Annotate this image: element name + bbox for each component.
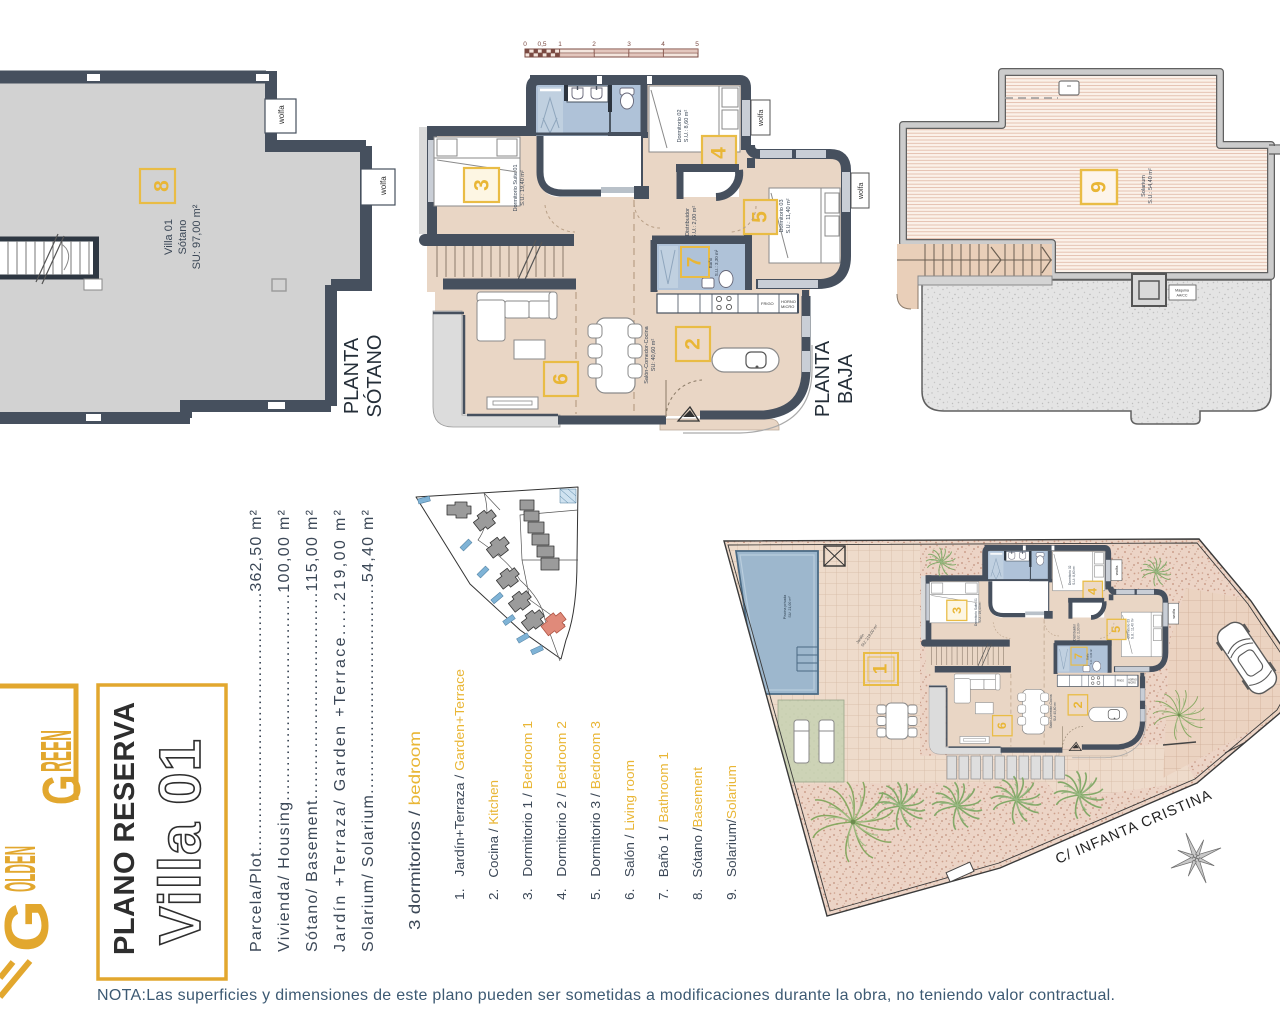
svg-text:wolfa: wolfa <box>758 110 765 127</box>
svg-text:SU: 97,00 m²: SU: 97,00 m² <box>191 204 203 269</box>
svg-text:1: 1 <box>871 663 892 674</box>
svg-text:3: 3 <box>471 179 494 191</box>
svg-text:G: G <box>0 900 62 952</box>
svg-text:S.U.: 3,30 m²: S.U.: 3,30 m² <box>714 249 719 276</box>
svg-text:4. Dormitorio 2 / Bedroom 2: 4. Dormitorio 2 / Bedroom 2 <box>554 721 569 900</box>
svg-text:5: 5 <box>695 41 699 48</box>
svg-text:Distribuidor: Distribuidor <box>685 208 691 236</box>
svg-text:Baño: Baño <box>708 257 713 268</box>
svg-text:SU: 40,60 m²: SU: 40,60 m² <box>651 339 657 372</box>
svg-text:Salón-Comedor-Cocina: Salón-Comedor-Cocina <box>644 325 650 383</box>
svg-text:S.U.: 2,00 m²: S.U.: 2,00 m² <box>692 206 698 239</box>
svg-text:MICRO: MICRO <box>781 304 794 309</box>
svg-text:OLDEN: OLDEN <box>0 846 45 892</box>
svg-text:Dormitorio Suite 01: Dormitorio Suite 01 <box>513 164 519 211</box>
svg-text:SÓTANO: SÓTANO <box>363 335 386 418</box>
svg-text:7. Baño 1 / Bathroom 1: 7. Baño 1 / Bathroom 1 <box>656 752 671 900</box>
svg-text:PLANTA: PLANTA <box>341 337 363 414</box>
svg-text:Máquina: Máquina <box>1175 289 1189 293</box>
svg-text:PLANO RESERVA: PLANO RESERVA <box>109 701 141 955</box>
svg-text:0: 0 <box>523 41 527 48</box>
svg-text:wolfa: wolfa <box>277 105 286 125</box>
svg-text:4: 4 <box>708 147 731 159</box>
svg-text:3. Dormitorio 1 / Bedroom 1: 3. Dormitorio 1 / Bedroom 1 <box>520 721 535 900</box>
svg-text:S.U.: 19,40 m²: S.U.: 19,40 m² <box>520 170 526 206</box>
svg-text:Dormitorio 03: Dormitorio 03 <box>779 199 785 232</box>
svg-text:S.U.: 8,60 m²: S.U.: 8,60 m² <box>684 110 690 143</box>
svg-text:Sótano: Sótano <box>177 220 189 255</box>
svg-text:2. Cocina / Kitchen: 2. Cocina / Kitchen <box>486 780 501 900</box>
svg-text:0,5: 0,5 <box>537 41 546 48</box>
svg-text:3: 3 <box>627 41 631 48</box>
svg-text:2: 2 <box>592 41 596 48</box>
svg-text:S.U.: 11,40 m²: S.U.: 11,40 m² <box>786 198 792 233</box>
svg-text:G: G <box>31 774 92 805</box>
svg-text:Sótano/ Basement..............: Sótano/ Basement........................… <box>304 509 321 952</box>
svg-text:3 dormitorios / bedroom: 3 dormitorios / bedroom <box>407 731 424 930</box>
svg-text:wolfa: wolfa <box>858 183 865 200</box>
svg-text:9. Solarium/Solarium: 9. Solarium/Solarium <box>724 765 739 900</box>
svg-text:5: 5 <box>749 211 772 223</box>
svg-text:8: 8 <box>151 180 174 192</box>
svg-text:Solarium: Solarium <box>1141 175 1147 197</box>
svg-text:9: 9 <box>1088 181 1111 193</box>
svg-text:Dormitorio 02: Dormitorio 02 <box>677 109 683 142</box>
svg-text:Jardín +Terraza/ Garden +Terra: Jardín +Terraza/ Garden +Terrace.....219… <box>332 509 349 952</box>
svg-text:BAJA: BAJA <box>835 353 857 404</box>
svg-text:1. Jardín+Terraza / Garden+T: 1. Jardín+Terraza / Garden+Terrace <box>452 669 467 900</box>
svg-text:6: 6 <box>550 373 573 385</box>
svg-text:Vivienda/ Housing.............: Vivienda/ Housing.......................… <box>276 509 293 952</box>
svg-text:REEN: REEN <box>33 730 82 772</box>
svg-text:Piscina privada: Piscina privada <box>783 595 787 619</box>
svg-text:6. Salón / Living room: 6. Salón / Living room <box>622 760 637 900</box>
svg-text:PLANTA: PLANTA <box>812 340 834 417</box>
svg-text:Villa 01: Villa 01 <box>148 738 213 945</box>
svg-text:SU: 21,00 m²: SU: 21,00 m² <box>788 596 792 618</box>
svg-text:5. Dormitorio 3 / Bedroom 3: 5. Dormitorio 3 / Bedroom 3 <box>588 721 603 900</box>
svg-text:wolfa: wolfa <box>379 176 388 196</box>
svg-text:Parcela/Plot..................: Parcela/Plot............................… <box>248 509 265 952</box>
svg-text:1: 1 <box>558 41 562 48</box>
svg-text:Solarium/ Solarium............: Solarium/ Solarium......................… <box>360 509 377 952</box>
svg-text:S.U.: 54,40 m²: S.U.: 54,40 m² <box>1148 168 1154 204</box>
svg-text:AA/CC: AA/CC <box>1177 294 1188 298</box>
svg-text:8. Sótano /Basement: 8. Sótano /Basement <box>690 767 705 900</box>
svg-text:Villa 01: Villa 01 <box>163 219 175 255</box>
svg-text:4: 4 <box>661 41 665 48</box>
svg-text:2: 2 <box>682 338 705 350</box>
svg-text:7: 7 <box>685 257 706 268</box>
svg-text:FRIGO: FRIGO <box>761 301 774 306</box>
svg-text:NOTA:Las superficies y dimensi: NOTA:Las superficies y dimensiones de es… <box>97 987 1115 1004</box>
